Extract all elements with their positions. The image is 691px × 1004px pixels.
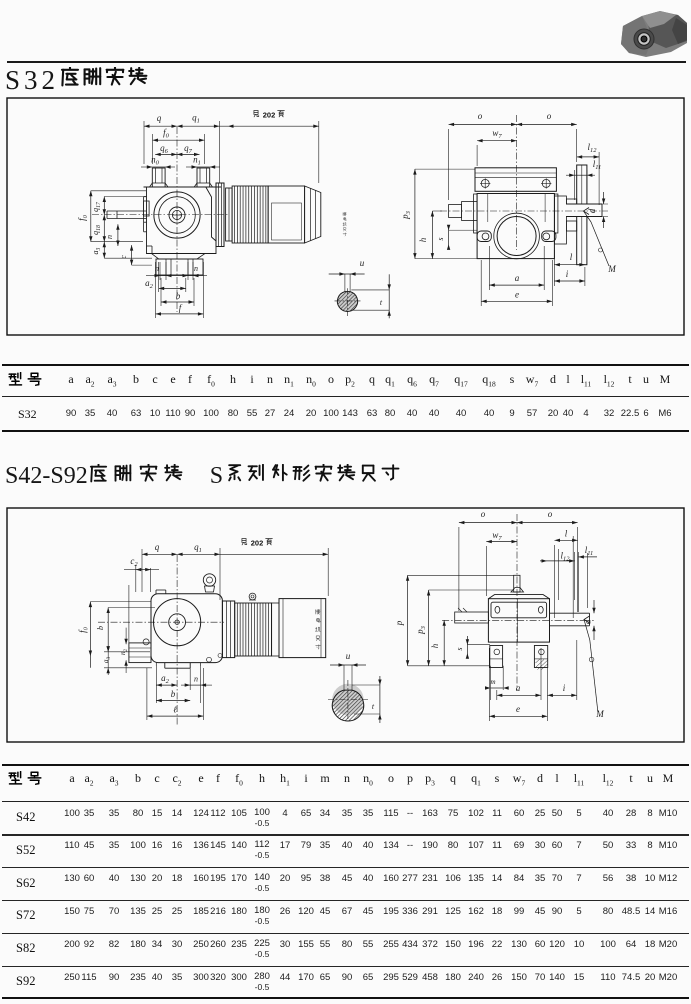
svg-text:a2: a2 xyxy=(161,673,170,685)
svg-text:202: 202 xyxy=(251,539,264,548)
svg-text:M: M xyxy=(607,264,616,274)
svg-text:a3: a3 xyxy=(91,247,102,254)
svg-text:M: M xyxy=(595,709,604,719)
svg-text:f: f xyxy=(179,303,183,313)
svg-text:l11: l11 xyxy=(593,159,602,171)
svg-text:q18: q18 xyxy=(91,225,102,235)
svg-text:q: q xyxy=(157,113,162,123)
svg-text:202: 202 xyxy=(263,111,276,120)
svg-text:o: o xyxy=(478,111,483,121)
svg-text:t: t xyxy=(380,298,383,307)
svg-text:c2: c2 xyxy=(130,556,138,568)
svg-text:w7: w7 xyxy=(492,530,502,542)
svg-text:u: u xyxy=(360,258,365,268)
svg-text:q17: q17 xyxy=(91,201,102,212)
svg-text:q1: q1 xyxy=(192,113,200,125)
svg-text:b: b xyxy=(176,291,181,301)
svg-text:m: m xyxy=(490,678,495,686)
svg-text:l11: l11 xyxy=(585,545,594,557)
svg-text:d: d xyxy=(587,208,597,213)
svg-text:p3: p3 xyxy=(415,625,427,635)
svg-text:e: e xyxy=(516,704,520,714)
svg-text:f0: f0 xyxy=(77,214,89,221)
svg-text:q7: q7 xyxy=(184,143,193,155)
svg-text:n: n xyxy=(194,264,198,273)
svg-text:q6: q6 xyxy=(160,143,169,155)
svg-text:f0: f0 xyxy=(163,128,170,140)
svg-text:a: a xyxy=(515,273,520,283)
svg-text:ℓ: ℓ xyxy=(173,705,177,715)
svg-text:b: b xyxy=(96,626,105,630)
svg-text:q: q xyxy=(155,542,160,552)
svg-text:n2: n2 xyxy=(119,649,129,656)
svg-text:b: b xyxy=(171,689,176,699)
svg-text:p: p xyxy=(394,620,404,626)
svg-text:o: o xyxy=(481,509,486,519)
svg-text:n: n xyxy=(194,675,198,684)
svg-text:a: a xyxy=(516,683,521,693)
svg-text:l12: l12 xyxy=(588,142,598,154)
svg-text:h: h xyxy=(418,237,428,242)
svg-text:l: l xyxy=(565,529,568,539)
svg-text:s: s xyxy=(455,647,464,650)
svg-text:o: o xyxy=(548,509,553,519)
svg-text:i: i xyxy=(563,683,566,693)
svg-text:e: e xyxy=(515,290,519,300)
svg-text:n1: n1 xyxy=(193,155,201,167)
svg-text:f0: f0 xyxy=(78,626,90,633)
svg-text:w7: w7 xyxy=(492,128,502,140)
svg-text:t: t xyxy=(372,702,375,711)
svg-text:l: l xyxy=(570,252,573,262)
svg-text:q1: q1 xyxy=(194,542,202,554)
svg-text:c: c xyxy=(119,255,128,259)
svg-text:i: i xyxy=(566,269,569,279)
svg-text:a3: a3 xyxy=(101,656,112,663)
svg-text:u: u xyxy=(346,651,351,661)
svg-text:h: h xyxy=(430,643,440,648)
svg-text:s: s xyxy=(436,237,445,240)
svg-text:a2: a2 xyxy=(145,278,154,290)
svg-text:n: n xyxy=(105,235,114,239)
svg-text:p3: p3 xyxy=(400,210,412,220)
svg-text:o: o xyxy=(547,111,552,121)
svg-text:n0: n0 xyxy=(151,155,160,167)
